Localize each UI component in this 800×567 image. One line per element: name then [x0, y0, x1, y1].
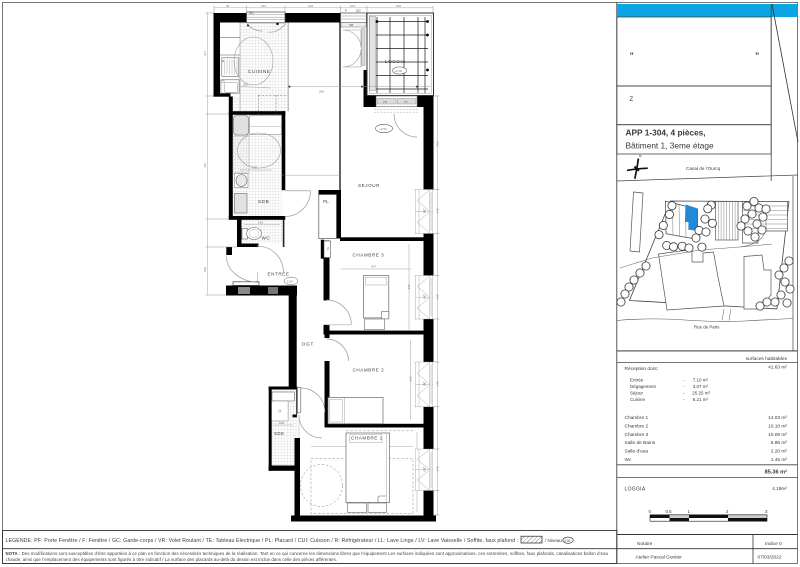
svg-text:NOTA : Des modifications sont: NOTA : Des modifications sont susceptibl… — [6, 551, 609, 556]
svg-text:216: 216 — [243, 83, 248, 87]
svg-text:TE: TE — [326, 247, 330, 251]
svg-text:Chambre 3: Chambre 3 — [625, 432, 649, 438]
svg-text:90: 90 — [226, 4, 230, 8]
svg-text:250: 250 — [436, 141, 440, 146]
svg-text:SEJOUR: SEJOUR — [358, 183, 380, 188]
svg-text:2.20 m²: 2.20 m² — [771, 449, 788, 455]
svg-text:268: 268 — [319, 90, 324, 94]
svg-text:surfaces habitables: surfaces habitables — [746, 356, 788, 362]
svg-text:Cuisine: Cuisine — [630, 397, 646, 402]
svg-text:chaude, ainsi que l’emplacemen: chaude, ainsi que l’emplacement des équi… — [6, 557, 338, 562]
svg-text:DGT: DGT — [302, 342, 314, 347]
svg-text:318: 318 — [409, 376, 413, 381]
svg-text:Canal de l’Ourcq: Canal de l’Ourcq — [686, 166, 721, 171]
svg-text:140: 140 — [436, 381, 440, 386]
svg-text:+0.05: +0.05 — [395, 69, 403, 73]
svg-text:Rue de Paris: Rue de Paris — [694, 325, 720, 330]
svg-text:85.36 m²: 85.36 m² — [765, 469, 788, 476]
svg-text:407: 407 — [371, 265, 376, 269]
svg-text:218: 218 — [308, 4, 313, 8]
svg-text:Chambre 2: Chambre 2 — [625, 424, 649, 430]
svg-text:CHAMBRE 1: CHAMBRE 1 — [351, 435, 383, 440]
svg-text:LOGGIA: LOGGIA — [385, 59, 406, 64]
svg-text:ENTREE: ENTREE — [268, 271, 290, 276]
svg-text:14.03 m²: 14.03 m² — [768, 415, 787, 421]
svg-text:235: 235 — [407, 284, 411, 289]
svg-text:6.21 m²: 6.21 m² — [693, 397, 709, 402]
svg-text:SDB: SDB — [258, 199, 269, 204]
svg-text:7.10 m²: 7.10 m² — [693, 378, 709, 383]
svg-text:4.19m²: 4.19m² — [772, 486, 787, 492]
svg-text:25.25 m²: 25.25 m² — [692, 391, 710, 396]
svg-text:Notaire: Notaire — [637, 541, 653, 547]
svg-text:0.5: 0.5 — [666, 509, 673, 514]
svg-text:/ Niveau: / Niveau — [545, 538, 562, 543]
svg-text:GC: GC — [249, 11, 254, 15]
svg-text:10.10 m²: 10.10 m² — [768, 424, 787, 430]
svg-text:”: ” — [630, 51, 634, 61]
svg-text:CHAMBRE 2: CHAMBRE 2 — [353, 367, 385, 372]
svg-text:Wc: Wc — [625, 457, 633, 463]
svg-text:PF: PF — [404, 100, 408, 104]
svg-text:0.00: 0.00 — [564, 539, 570, 543]
svg-text:410: 410 — [203, 163, 207, 168]
svg-text:260: 260 — [396, 4, 401, 8]
svg-text:140: 140 — [436, 294, 440, 299]
svg-text:LEGENDE: PF: Porte Fenêtre / F: LEGENDE: PF: Porte Fenêtre / F: Fenêtre … — [6, 538, 519, 544]
svg-text:APP 1-304, 4 pièces,: APP 1-304, 4 pièces, — [626, 128, 706, 138]
svg-text:+2.50: +2.50 — [379, 127, 387, 131]
svg-text:LOGGIA: LOGGIA — [625, 487, 646, 493]
svg-text:Z: Z — [630, 97, 634, 103]
svg-text:2.50: 2.50 — [287, 279, 293, 283]
svg-text:07/03/2022: 07/03/2022 — [758, 555, 782, 561]
svg-text:41.63 m²: 41.63 m² — [768, 365, 787, 371]
svg-text:106: 106 — [279, 421, 284, 425]
svg-text:CHAMBRE 3: CHAMBRE 3 — [353, 252, 385, 257]
svg-text:162: 162 — [252, 166, 257, 170]
svg-text:F: F — [345, 9, 347, 13]
svg-text:140: 140 — [436, 208, 440, 213]
svg-text:5.86 m²: 5.86 m² — [771, 440, 788, 446]
svg-text:Séjour: Séjour — [630, 391, 644, 396]
svg-text:R: R — [222, 59, 224, 63]
svg-text:Salle de Bains: Salle de Bains — [625, 440, 656, 446]
svg-text:Entrée: Entrée — [630, 378, 644, 383]
svg-text:327: 327 — [203, 51, 207, 56]
svg-text:188: 188 — [203, 267, 207, 272]
svg-text:3.07 m²: 3.07 m² — [693, 384, 709, 389]
svg-text:104: 104 — [350, 4, 355, 8]
svg-text:Indice 0: Indice 0 — [765, 541, 782, 547]
svg-text:Atelier Pascal Gontier: Atelier Pascal Gontier — [636, 555, 683, 561]
svg-text:SDE: SDE — [274, 431, 285, 436]
svg-text:GC: GC — [356, 9, 361, 13]
svg-text:WC: WC — [262, 235, 271, 240]
svg-text:Dégagement: Dégagement — [630, 384, 657, 389]
svg-text:152: 152 — [261, 4, 266, 8]
svg-text:Bâtiment 1, 3eme étage: Bâtiment 1, 3eme étage — [626, 141, 714, 151]
svg-text:Chambre 1: Chambre 1 — [625, 415, 649, 421]
svg-text:140: 140 — [258, 221, 263, 225]
svg-text:PL.: PL. — [323, 199, 330, 204]
svg-text:PB: PB — [383, 100, 387, 104]
svg-text:”: ” — [755, 51, 759, 61]
svg-text:10.09 m²: 10.09 m² — [768, 432, 787, 438]
svg-text:Réception dont:: Réception dont: — [625, 366, 659, 372]
svg-text:1.45 m²: 1.45 m² — [771, 457, 788, 463]
svg-text:Salle d’eau: Salle d’eau — [625, 449, 649, 455]
svg-text:140: 140 — [436, 466, 440, 471]
svg-text:CUISINE: CUISINE — [248, 69, 270, 74]
